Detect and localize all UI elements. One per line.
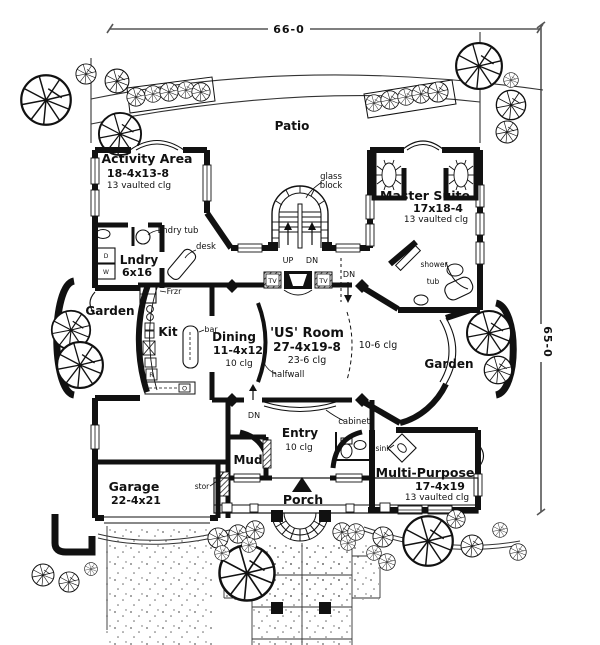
frzr-label: Frzr bbox=[167, 287, 183, 296]
master-suite-label: Master Suite bbox=[380, 188, 470, 203]
desk-label: desk bbox=[196, 242, 216, 252]
mud-label: Mud bbox=[233, 453, 262, 467]
glass-block-label-2: block bbox=[320, 181, 343, 191]
patio-label: Patio bbox=[275, 119, 310, 133]
garage-size: 22-4x21 bbox=[111, 494, 161, 507]
shower-label: shower bbox=[420, 260, 448, 269]
stair-dn-label: DN bbox=[306, 256, 318, 265]
lndry-label: Lndry bbox=[120, 253, 159, 267]
us-room-label: 'US' Room bbox=[270, 326, 344, 341]
range-label: R bbox=[149, 371, 154, 379]
us-room-ceiling: 23-6 clg bbox=[288, 355, 326, 366]
activity-area-size: 18-4x13-8 bbox=[107, 167, 169, 180]
floor-plan-drawing: 66-0 65-0 Patio Activity Area 18-4x13-8 … bbox=[0, 0, 600, 645]
tub-label: tub bbox=[427, 277, 440, 286]
dimension-top-label: 66-0 bbox=[273, 23, 305, 36]
us-room-size: 27-4x19-8 bbox=[273, 340, 341, 354]
master-suite-size: 17x18-4 bbox=[413, 202, 463, 215]
multi-purpose-label: Multi-Purpose bbox=[376, 465, 475, 480]
kit-label: Kit bbox=[158, 325, 177, 339]
tv-right-label: TV bbox=[318, 277, 328, 285]
garage-label: Garage bbox=[109, 479, 160, 494]
stor-label: stor bbox=[195, 482, 210, 491]
cabinet-label: cabinet bbox=[338, 417, 370, 427]
dryer-label: D bbox=[104, 253, 109, 260]
tv-left-label: TV bbox=[267, 277, 277, 285]
driveway bbox=[104, 526, 212, 645]
dining-ceiling: 10 clg bbox=[225, 359, 252, 369]
oven-label: O bbox=[182, 385, 187, 393]
activity-area-ceiling: 13 vaulted clg bbox=[107, 181, 171, 191]
garden-left-label: Garden bbox=[85, 304, 134, 318]
washer-label: W bbox=[103, 269, 109, 276]
activity-area-label: Activity Area bbox=[101, 151, 192, 166]
floor-plan-canvas: 66-0 65-0 Patio Activity Area 18-4x13-8 … bbox=[0, 0, 600, 645]
master-suite-ceiling: 13 vaulted clg bbox=[404, 215, 468, 225]
sink-label: sink bbox=[375, 444, 391, 453]
dimension-top bbox=[107, 24, 543, 33]
dining-label: Dining bbox=[212, 330, 256, 344]
dn-bottom-label: DN bbox=[248, 411, 260, 420]
lndry-tub-label: Lndry tub bbox=[158, 226, 199, 236]
entry-ceiling: 10 clg bbox=[285, 443, 312, 453]
bay-ceiling: 10-6 clg bbox=[359, 340, 397, 351]
halfwall-label: halfwall bbox=[272, 370, 305, 380]
porch-label: Porch bbox=[283, 492, 323, 507]
courtyard-wall bbox=[55, 514, 92, 552]
dimension-right bbox=[537, 22, 545, 515]
stair-up-label: UP bbox=[283, 256, 294, 265]
dining-size: 11-4x12 bbox=[213, 344, 263, 357]
multi-purpose-size: 17-4x19 bbox=[415, 480, 465, 493]
dn-right-label: DN bbox=[343, 270, 355, 279]
garden-right-label: Garden bbox=[424, 357, 473, 371]
lndry-size: 6x16 bbox=[122, 266, 152, 279]
dimension-right-label: 65-0 bbox=[541, 326, 554, 358]
glass-block-stair bbox=[268, 182, 332, 251]
entry-label: Entry bbox=[282, 426, 318, 440]
multi-purpose-ceiling: 13 vaulted clg bbox=[405, 493, 469, 503]
